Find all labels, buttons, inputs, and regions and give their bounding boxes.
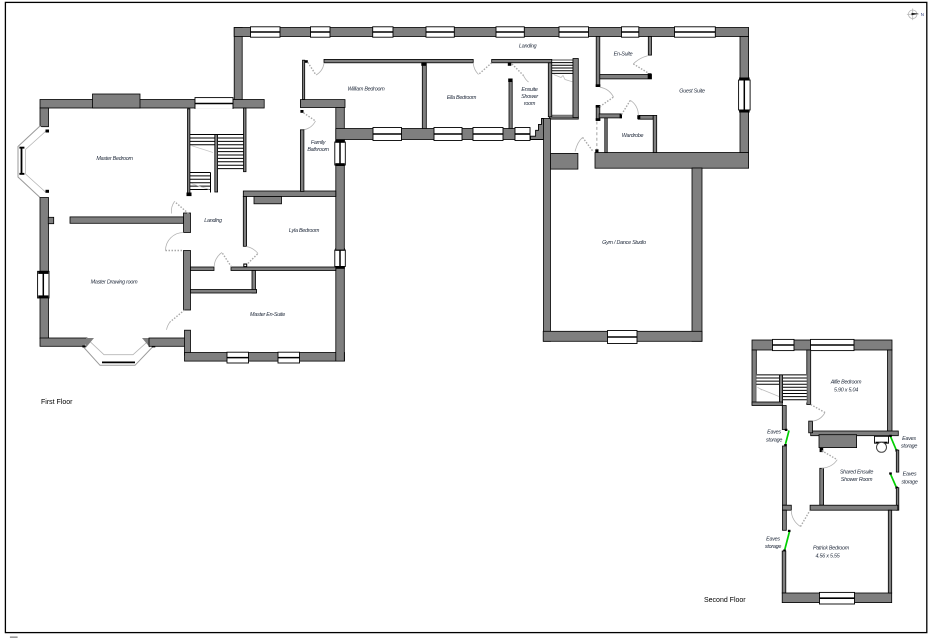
svg-text:Eaves: Eaves — [903, 472, 917, 478]
svg-text:Eaves: Eaves — [902, 436, 916, 442]
svg-text:Eaves: Eaves — [766, 537, 780, 543]
svg-text:First Floor: First Floor — [41, 399, 73, 406]
svg-text:Shower Room: Shower Room — [841, 477, 873, 483]
svg-text:Shower: Shower — [521, 94, 538, 100]
svg-text:Second Floor: Second Floor — [704, 597, 746, 604]
svg-text:Master En-Suite: Master En-Suite — [250, 312, 285, 318]
svg-text:Family: Family — [311, 140, 326, 146]
svg-text:Landing: Landing — [204, 218, 222, 224]
svg-text:Patrick Bedroom: Patrick Bedroom — [813, 546, 850, 552]
svg-text:storage: storage — [901, 444, 917, 450]
svg-text:Master Drawing room: Master Drawing room — [91, 280, 139, 286]
svg-text:Bathroom: Bathroom — [307, 147, 329, 153]
svg-text:Alfie Bedroom: Alfie Bedroom — [830, 380, 862, 386]
svg-text:Shared Ensuite: Shared Ensuite — [840, 470, 874, 476]
svg-text:room: room — [524, 101, 536, 107]
svg-text:Guest Suite: Guest Suite — [679, 89, 705, 95]
svg-text:Landing: Landing — [519, 44, 537, 50]
svg-text:5.90 x 5.04: 5.90 x 5.04 — [834, 388, 858, 394]
svg-text:Ensuite: Ensuite — [521, 87, 537, 93]
svg-text:storage: storage — [766, 438, 782, 444]
svg-text:storage: storage — [765, 544, 781, 550]
svg-text:Wardrobe: Wardrobe — [622, 133, 644, 139]
svg-text:Eaves: Eaves — [767, 430, 781, 436]
svg-text:Ella Bedroom: Ella Bedroom — [447, 95, 477, 101]
svg-text:Master Bedroom: Master Bedroom — [96, 156, 133, 162]
svg-text:Gym / Dance Studio: Gym / Dance Studio — [602, 240, 646, 246]
svg-text:Lyla Bedroom: Lyla Bedroom — [289, 228, 320, 234]
svg-text:William Bedroom: William Bedroom — [348, 87, 386, 93]
svg-text:En-Suite: En-Suite — [614, 52, 633, 58]
svg-text:N: N — [921, 12, 924, 17]
svg-text:storage: storage — [901, 480, 917, 486]
svg-text:4.56 x 5.55: 4.56 x 5.55 — [816, 554, 841, 560]
